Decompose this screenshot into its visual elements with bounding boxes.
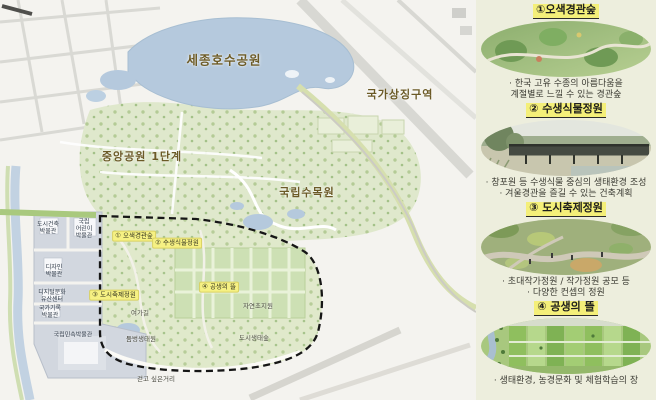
- label-design-museum: 디자인 박물관: [46, 264, 63, 278]
- caption-line: · 겨울경관을 즐길 수 있는 건축계획: [486, 189, 647, 201]
- legend-title-festival: ③ 도시축제정원: [526, 202, 606, 217]
- festival-garden-photo: [481, 219, 651, 275]
- legend-card-forest: ①오색경관숲 · 한국 고유 수종의 아름다움을 계절별로 느낄 수 있는 경관…: [476, 4, 656, 103]
- caption-line: · 창포원 등 수생식물 중심의 생태환경 조성: [486, 178, 647, 190]
- label-walking-street: 걷고 싶은거리: [137, 373, 175, 383]
- communal-field-photo: [481, 318, 651, 374]
- building-block: [452, 8, 466, 18]
- label-forest-1: ① 오색경관숲: [112, 231, 156, 242]
- label-communal-field-4: ④ 공생의 뜰: [199, 282, 239, 293]
- label-urban-architecture-museum: 도시건축 박물관: [37, 221, 59, 235]
- label-leisure-trail: 여가길: [131, 307, 149, 317]
- aquatic-photo-art: [481, 120, 651, 176]
- label-natural-grassland: 자연초지원: [243, 300, 273, 310]
- communal-caption: · 생태환경, 농경문화 및 체험학습의 장: [494, 376, 638, 388]
- label-digital-heritage-center: 디지털문화 유산센터: [38, 289, 66, 303]
- building-block: [460, 26, 472, 35]
- caption-line: · 생태환경, 농경문화 및 체험학습의 장: [494, 376, 638, 388]
- communal-fields: [175, 248, 305, 318]
- forest-photo: [481, 21, 651, 77]
- caption-line: · 다양한 컨셉의 정원: [502, 288, 630, 300]
- caption-line: · 한국 고유 수종의 아름다움을: [509, 79, 623, 91]
- master-plan-page: 세종호수공원 국가상징구역 중앙공원 1단계 국립수목원 ① 오색경관숲 ② 수…: [0, 0, 656, 400]
- label-central-park-phase1: 중앙공원 1단계: [102, 148, 182, 164]
- legend-card-aquatic-garden: ② 수생식물정원: [476, 103, 656, 202]
- label-festival-garden-3: ③ 도시축제정원: [89, 290, 139, 301]
- aquatic-caption: · 창포원 등 수생식물 중심의 생태환경 조성 · 겨울경관을 즐길 수 있는…: [486, 178, 647, 201]
- legend-title-communal: ④ 공생의 뜰: [534, 301, 597, 316]
- festival-photo-art: [481, 219, 651, 275]
- caption-line: 계절별로 느낄 수 있는 경관숲: [509, 90, 623, 102]
- aquatic-garden-photo: [481, 120, 651, 176]
- legend-card-communal-field: ④ 공생의 뜰: [476, 301, 656, 400]
- label-children-museum: 국립 어린이 박물관: [76, 218, 93, 239]
- label-aquatic-garden-2: ② 수생식물정원: [152, 238, 202, 249]
- legend-sidebar: ①오색경관숲 · 한국 고유 수종의 아름다움을 계절별로 느낄 수 있는 경관…: [476, 0, 656, 400]
- festival-caption: · 초대작가정원 / 작가정원 공모 등 · 다양한 컨셉의 정원: [502, 277, 630, 300]
- label-folk-museum: 국립민속박물관: [54, 331, 93, 338]
- communal-photo-art: [481, 318, 651, 374]
- label-lake-park: 세종호수공원: [186, 50, 261, 69]
- legend-title-aquatic: ② 수생식물정원: [526, 103, 606, 118]
- caption-line: · 초대작가정원 / 작가정원 공모 등: [502, 277, 630, 289]
- green-bridge-band: [0, 212, 96, 215]
- label-urban-eco-forest: 도시생태숲: [239, 332, 269, 342]
- label-pond-eco-garden: 둠벙생태원: [126, 333, 156, 343]
- label-national-arboretum: 국립수목원: [279, 184, 335, 200]
- legend-card-festival-garden: ③ 도시축제정원: [476, 202, 656, 301]
- forest-photo-art: [481, 21, 651, 77]
- forest-caption: · 한국 고유 수종의 아름다움을 계절별로 느낄 수 있는 경관숲: [509, 79, 623, 102]
- park-master-plan-map: 세종호수공원 국가상징구역 중앙공원 1단계 국립수목원 ① 오색경관숲 ② 수…: [0, 0, 476, 400]
- label-national-symbol-zone: 국가상징구역: [367, 86, 434, 102]
- label-archives-museum: 국가기록 박물관: [39, 305, 61, 319]
- legend-title-forest: ①오색경관숲: [533, 4, 599, 19]
